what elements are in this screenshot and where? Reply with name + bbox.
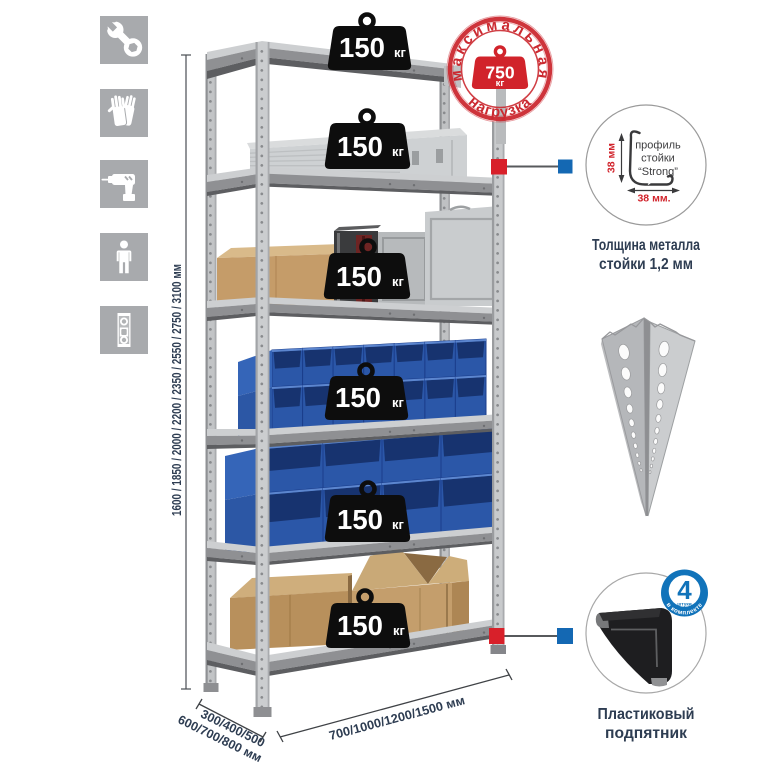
svg-text:кг: кг — [496, 78, 505, 89]
svg-text:кг: кг — [392, 395, 405, 410]
svg-text:кг: кг — [393, 623, 406, 638]
svg-text:кг: кг — [392, 274, 405, 289]
svg-text:150: 150 — [336, 261, 382, 292]
svg-text:38 мм: 38 мм — [606, 143, 618, 173]
svg-text:150: 150 — [335, 382, 381, 413]
svg-text:кг: кг — [394, 45, 407, 60]
svg-text:кг: кг — [392, 517, 405, 532]
svg-text:38 мм.: 38 мм. — [637, 193, 670, 205]
svg-text:150: 150 — [337, 131, 383, 162]
svg-text:стойки: стойки — [641, 153, 675, 165]
svg-text:4: 4 — [677, 575, 692, 605]
svg-text:стойки 1,2 мм: стойки 1,2 мм — [599, 256, 693, 273]
svg-text:150: 150 — [339, 32, 385, 63]
svg-text:подпятник: подпятник — [605, 725, 687, 742]
svg-text:150: 150 — [337, 504, 383, 535]
svg-text:кг: кг — [392, 144, 405, 159]
svg-text:штуки: штуки — [677, 603, 692, 608]
svg-text:Толщина металла: Толщина металла — [592, 237, 700, 254]
svg-text:Пластиковый: Пластиковый — [598, 706, 695, 723]
svg-text:профиль: профиль — [635, 140, 681, 152]
svg-text:1600 / 1850 / 2000 / 2200 / 23: 1600 / 1850 / 2000 / 2200 / 2350 / 2550 … — [170, 264, 184, 516]
svg-text:“Strong”: “Strong” — [638, 166, 678, 178]
svg-text:150: 150 — [337, 610, 383, 641]
